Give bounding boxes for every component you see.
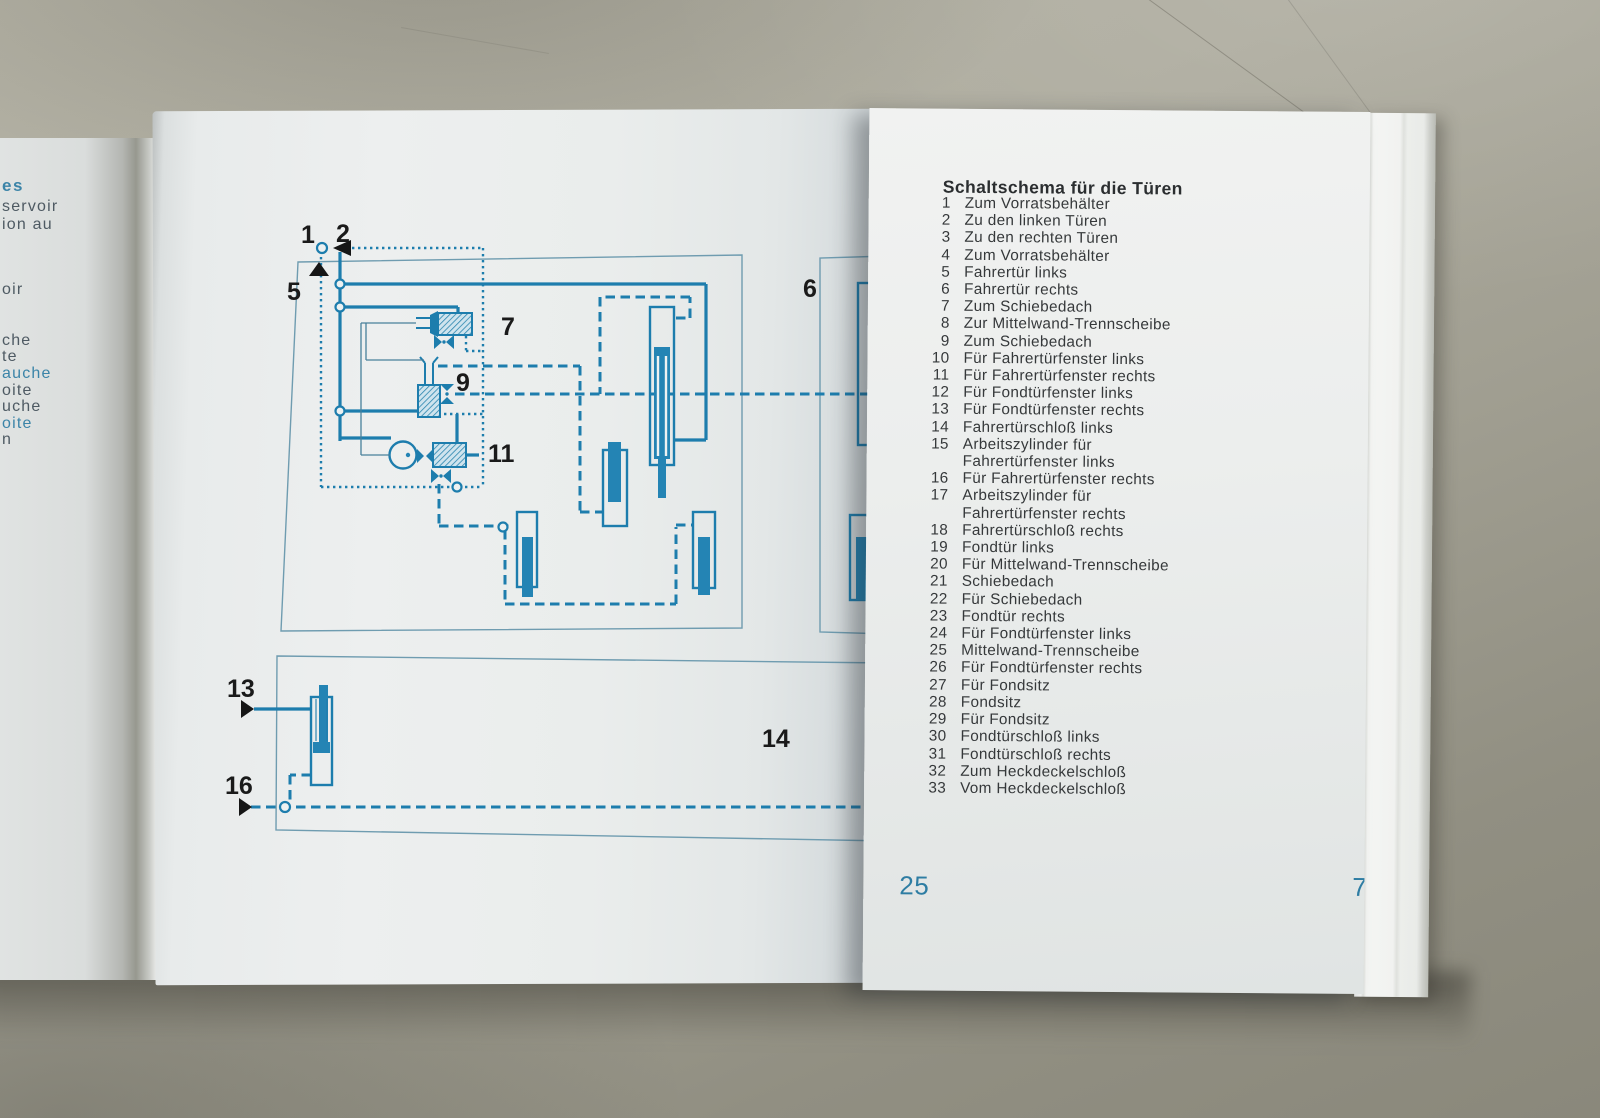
legend-number: 26	[917, 659, 947, 676]
legend-number: 19	[918, 539, 948, 556]
legend-number: 25	[917, 642, 947, 659]
legend-text: Fahrertürschloß rechts	[962, 522, 1124, 540]
valve-9	[418, 385, 440, 417]
legend-number: 33	[916, 779, 946, 796]
legend-text: Zum Schiebedach	[964, 332, 1093, 350]
legend-text: Für Fondtürfenster links	[961, 625, 1131, 644]
legend-text: Für Fahrertürfenster rechts	[963, 367, 1155, 386]
legend-number: 27	[917, 676, 947, 693]
legend-text: Für Fondsitz	[961, 676, 1050, 694]
legend-number: 15	[919, 435, 949, 452]
legend-text: Schiebedach	[962, 573, 1054, 591]
legend-text: Zum Vorratsbehälter	[964, 246, 1109, 264]
legend-number: 24	[917, 625, 947, 642]
legend-text: Für Fondtürfenster links	[963, 384, 1133, 403]
legend-item: 15 Arbeitszylinder für Fahrertürfenster …	[867, 435, 1368, 473]
legend-number: 12	[919, 384, 949, 401]
legend-number: 8	[920, 315, 950, 332]
valve-11	[433, 443, 466, 467]
right-page: Schaltschema für die Türen 1 Zum Vorrats…	[863, 108, 1371, 994]
legend-text: Zur Mittelwand-Trennscheibe	[964, 315, 1171, 334]
legend-number: 18	[918, 521, 948, 538]
page-number: 25	[899, 870, 929, 901]
legend-number: 32	[916, 762, 946, 779]
legend-number: 17	[918, 487, 948, 504]
legend-text: Für Fahrertürfenster links	[963, 350, 1144, 369]
diagram-label-7: 7	[501, 313, 515, 341]
legend-text: Für Fahrertürfenster rechts	[962, 470, 1154, 489]
legend-text: Fahrertür links	[964, 264, 1067, 282]
diagram-label-2: 2	[336, 220, 350, 248]
legend-text: Zum Vorratsbehälter	[965, 195, 1110, 213]
legend-text: Fahrertür rechts	[964, 281, 1079, 299]
legend-text: Zu den rechten Türen	[964, 229, 1118, 247]
valve-7-nozzle	[430, 311, 438, 337]
legend-text: Fahrertürschloß links	[963, 418, 1113, 436]
legend-number: 20	[918, 556, 948, 573]
diagram-label-6: 6	[803, 275, 817, 303]
legend-text: Für Mittelwand-Trennscheibe	[962, 556, 1169, 575]
legend-number: 30	[916, 728, 946, 745]
arrow-16-icon	[239, 798, 252, 816]
legend-text: Arbeitszylinder für	[963, 436, 1115, 454]
diagram-label-1: 1	[301, 221, 315, 249]
legend-text: Arbeitszylinder für	[962, 487, 1126, 505]
legend-number: 21	[918, 573, 948, 590]
pump-symbol	[390, 442, 417, 469]
legend-number: 11	[919, 366, 949, 383]
legend-text: Fondtür rechts	[961, 608, 1065, 626]
legend-number: 29	[917, 711, 947, 728]
legend-text: Fondtürschloß rechts	[960, 745, 1111, 763]
legend-list: 1 Zum Vorratsbehälter 2 Zu den linken Tü…	[864, 194, 1370, 800]
legend-text-continuation: Fahrertürfenster links	[963, 453, 1115, 471]
legend-text: Für Fondtürfenster rechts	[963, 401, 1144, 420]
legend-number: 1	[921, 194, 951, 211]
legend-text: Für Fondsitz	[961, 711, 1050, 729]
arrow-5-icon	[309, 262, 329, 276]
legend-text: Zu den linken Türen	[965, 212, 1108, 230]
legend-number: 13	[919, 401, 949, 418]
legend-number: 10	[919, 349, 949, 366]
legend-number: 5	[920, 263, 950, 280]
legend-number: 28	[917, 693, 947, 710]
legend-number: 6	[920, 280, 950, 297]
legend-text: Fondtür links	[962, 539, 1054, 557]
legend-number: 2	[921, 212, 951, 229]
legend-text: Fondsitz	[961, 694, 1022, 712]
diagram-label-11: 11	[488, 440, 515, 468]
legend-number: 22	[918, 590, 948, 607]
photo-of-open-manual: esservoirion auoircheteaucheoiteucheoite…	[0, 0, 1600, 1118]
legend-text: Mittelwand-Trennscheibe	[961, 642, 1140, 661]
legend-text: Zum Schiebedach	[964, 298, 1093, 316]
legend-text: Für Schiebedach	[962, 590, 1083, 608]
legend-number: 7	[920, 298, 950, 315]
valve-7	[438, 313, 472, 335]
legend-number: 9	[920, 332, 950, 349]
outline-boxes	[276, 255, 888, 841]
diagram-label-13: 13	[227, 675, 255, 703]
dashed-lines	[251, 297, 888, 807]
legend-number: 3	[920, 229, 950, 246]
legend-item: 17 Arbeitszylinder für Fahrertürfenster …	[866, 486, 1367, 524]
legend-text: Für Fondtürfenster rechts	[961, 659, 1142, 678]
diagram-label-14: 14	[762, 725, 790, 753]
legend-number: 14	[919, 418, 949, 435]
diagram-label-9: 9	[456, 369, 470, 397]
legend-item: 33 Vom Heckdeckelschloß	[864, 779, 1365, 800]
legend-number: 16	[918, 470, 948, 487]
legend-text-continuation: Fahrertürfenster rechts	[962, 504, 1126, 522]
legend-text: Fondtürschloß links	[960, 728, 1099, 746]
legend-number: 4	[920, 246, 950, 263]
legend-number: 23	[917, 607, 947, 624]
diagram-label-16: 16	[225, 772, 253, 800]
diagram-label-5: 5	[287, 278, 301, 306]
legend-text: Vom Heckdeckelschloß	[960, 780, 1126, 799]
cylinders	[311, 283, 876, 785]
cylinder-rods	[313, 347, 868, 753]
legend-text: Zum Heckdeckelschloß	[960, 762, 1126, 781]
pilot-lines	[361, 323, 424, 455]
legend-number: 31	[916, 745, 946, 762]
